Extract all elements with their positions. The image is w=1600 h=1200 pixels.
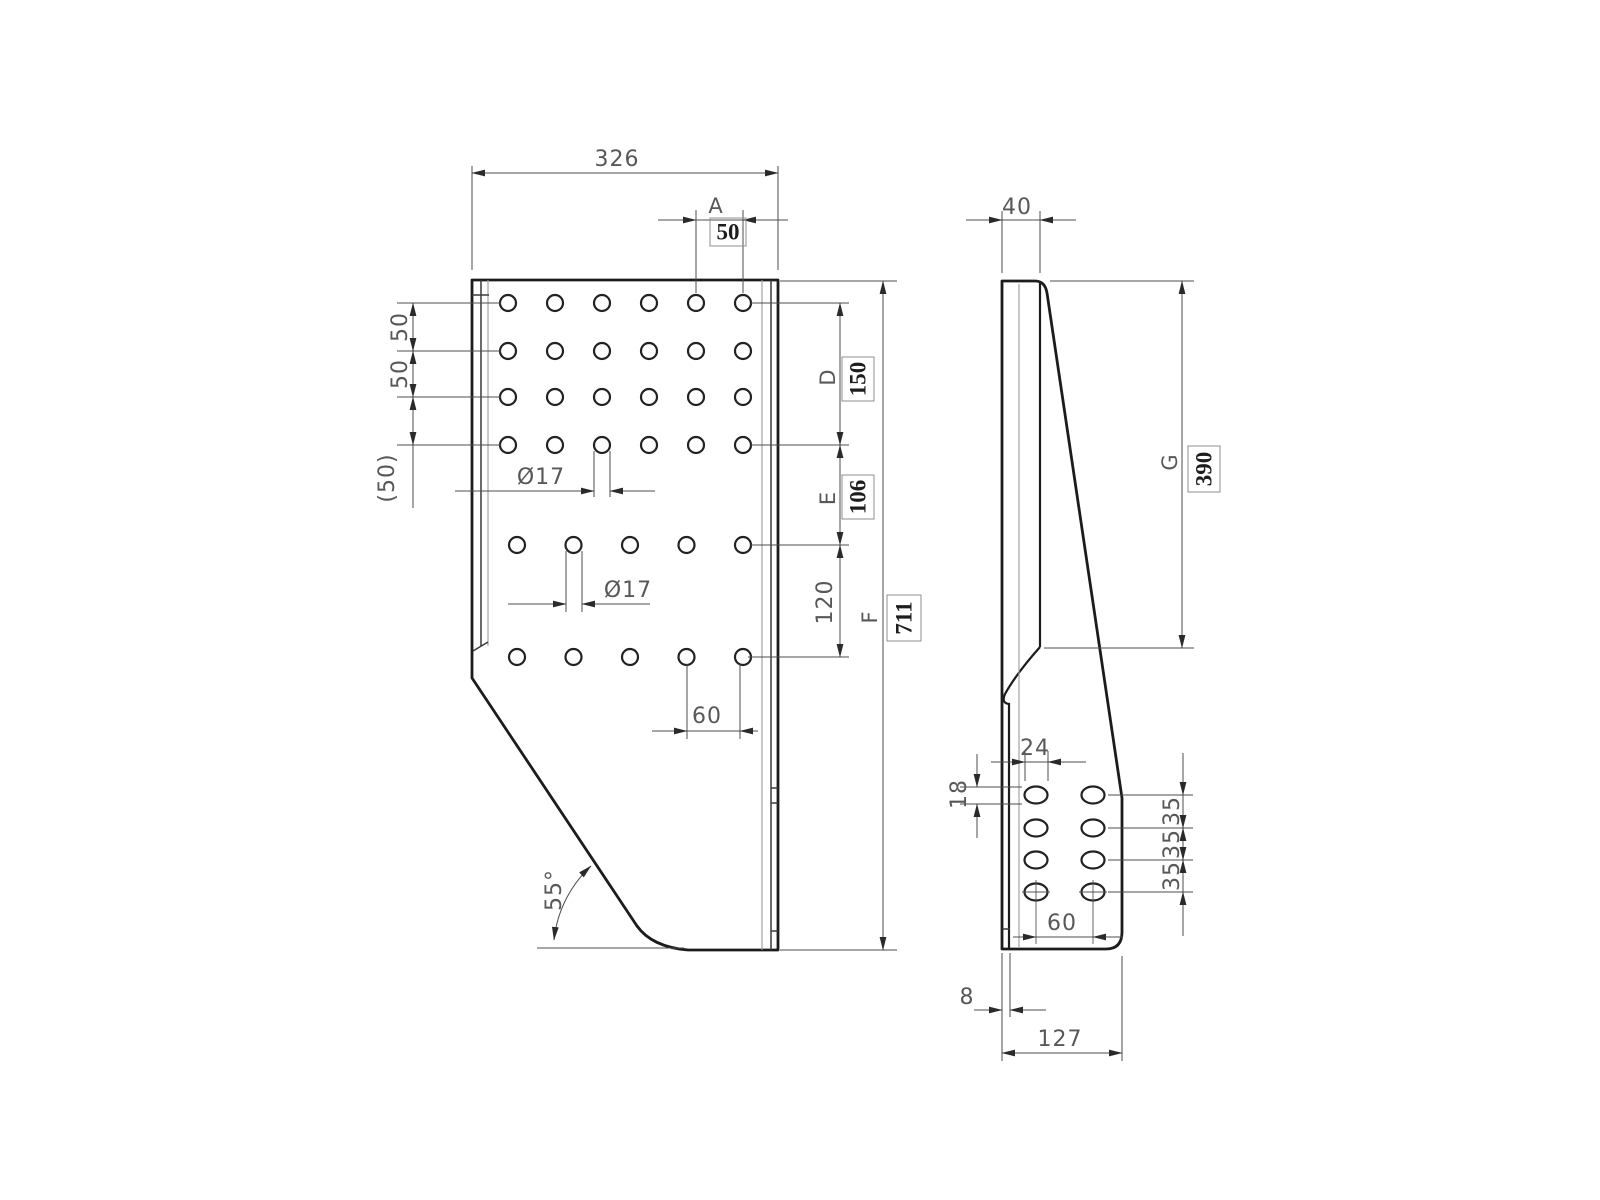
dim-side-g-value: 390 [1192, 452, 1217, 487]
dim-front-e-value: 106 [846, 480, 871, 515]
dim-side-pitch-2: 35 [1160, 829, 1185, 859]
dim-front-pitch-letter: A [708, 194, 723, 218]
dim-front-bevel-angle: 55° [542, 869, 567, 911]
dim-side-thickness: 8 [960, 985, 975, 1010]
dim-front-row-pitch-ref: (50) [375, 453, 400, 502]
dim-front-d-letter: D [816, 368, 840, 385]
dim-front-row-pitch-2: 50 [388, 359, 413, 389]
drawing-sheet: 326 A 50 50 50 (50) [0, 0, 1600, 1200]
front-view-outline [472, 280, 778, 950]
dim-side-depth: 40 [1002, 195, 1032, 220]
side-view-outline [1002, 281, 1122, 949]
side-view: 40 G 390 24 18 [947, 195, 1220, 1061]
dim-side-g-letter: G [1158, 453, 1182, 470]
dim-front-overall-width: 326 [595, 147, 640, 172]
dim-front-row-pitch-1: 50 [388, 312, 413, 342]
dim-side-slot-width: 18 [947, 779, 972, 809]
dim-front-pitch-value: 50 [717, 220, 740, 245]
dim-front-f-letter: F [858, 610, 882, 623]
dim-front-lower-pitch: 60 [692, 704, 722, 729]
dim-side-pitch-3: 35 [1160, 861, 1185, 891]
dim-side-slot-length: 24 [1020, 736, 1050, 761]
dim-front-d-value: 150 [846, 362, 871, 397]
dim-front-f-value: 711 [892, 601, 917, 634]
front-view: 326 A 50 50 50 (50) [375, 147, 921, 950]
dim-side-col-pitch: 60 [1047, 911, 1077, 936]
dim-side-pitch-1: 35 [1160, 796, 1185, 826]
front-view-dimensions: 326 A 50 50 50 (50) [375, 147, 921, 950]
dim-front-e-letter: E [816, 491, 840, 505]
dim-front-hole-dia-grid: Ø17 [517, 465, 565, 490]
dim-front-120: 120 [813, 580, 838, 625]
side-view-dimensions: 40 G 390 24 18 [947, 195, 1220, 1061]
dim-front-hole-dia-lower: Ø17 [604, 578, 652, 603]
dim-side-base-width: 127 [1038, 1027, 1083, 1052]
technical-drawing: 326 A 50 50 50 (50) [0, 0, 1600, 1200]
